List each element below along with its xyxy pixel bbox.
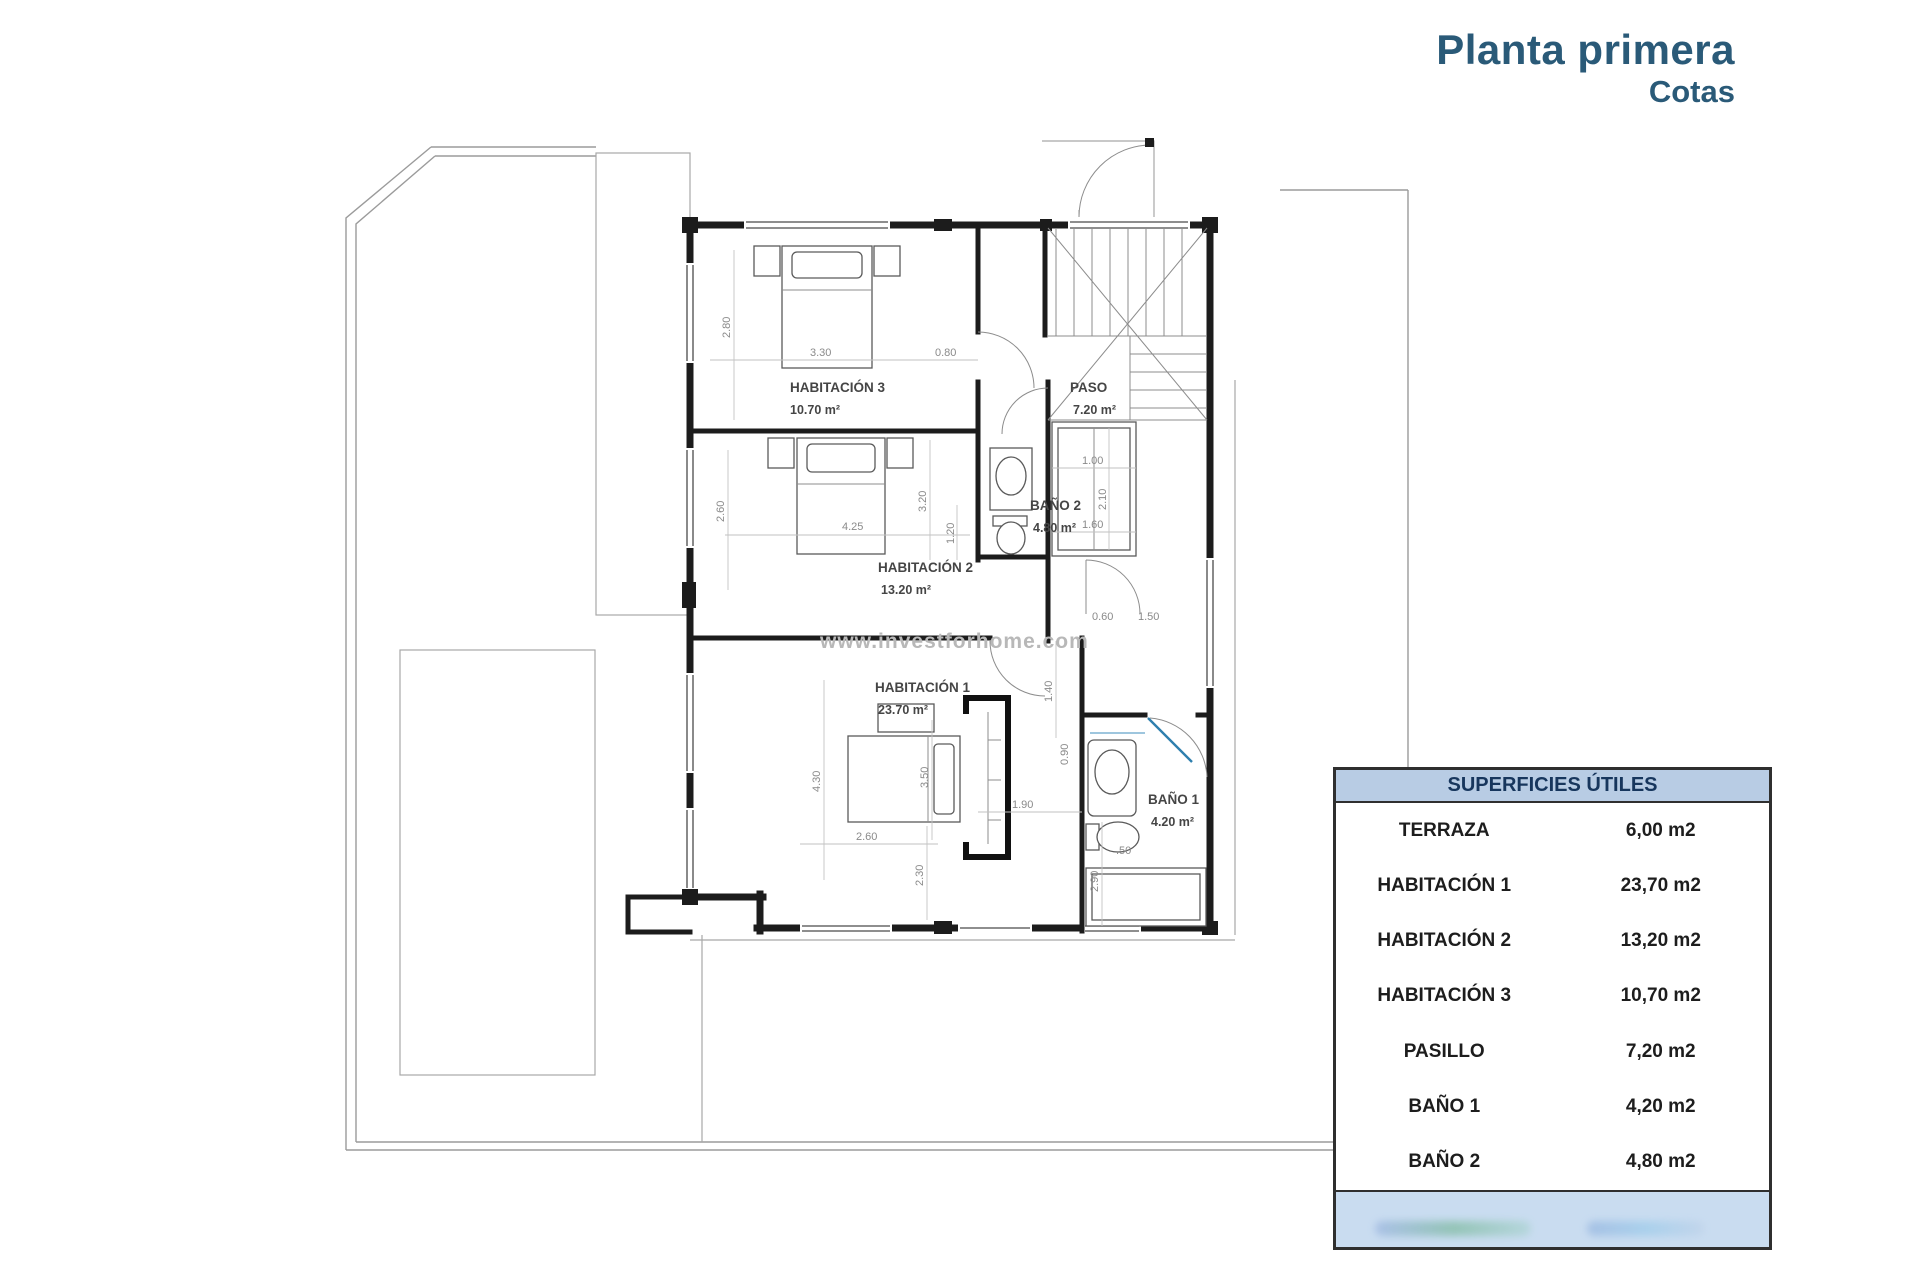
floor-plan-svg: 2.80 3.30 0.80 2.60 4.25 3.20 1.20 1.00 … [330, 120, 1450, 1210]
dim-hab1-g: 2.30 [914, 865, 926, 886]
windows [684, 219, 1216, 934]
terraza-balcony [628, 897, 690, 932]
dim-hab1-d: 3.50 [919, 767, 931, 788]
dim-hab3-height: 2.80 [721, 317, 733, 338]
row-value: 4,20 m2 [1553, 1096, 1770, 1118]
dim-hall-a: 0.60 [1092, 611, 1113, 623]
row-value: 13,20 m2 [1553, 930, 1770, 952]
dim-hab2-width: 4.25 [842, 521, 863, 533]
row-label: TERRAZA [1336, 820, 1553, 842]
dim-closet-width: 1.00 [1082, 455, 1103, 467]
watermark-text: www.investforhome.com [819, 630, 1089, 653]
room-area-habitacion-1: 23.70 m² [878, 703, 928, 717]
dim-hab1-a: 1.40 [1043, 681, 1055, 702]
row-value: 7,20 m2 [1553, 1041, 1770, 1063]
room-area-bano-1: 4.20 m² [1151, 815, 1194, 829]
bed-habitacion-2 [768, 438, 913, 554]
table-row: BAÑO 1 4,20 m2 [1336, 1079, 1769, 1134]
hall-closet [1052, 422, 1136, 556]
row-label: HABITACIÓN 2 [1336, 930, 1553, 952]
dim-hab2-height: 2.60 [715, 501, 727, 522]
row-label: HABITACIÓN 3 [1336, 985, 1553, 1007]
dim-hab3-width: 3.30 [810, 347, 831, 359]
wardrobe-habitacion-1 [966, 698, 1008, 857]
title-block: Planta primera Cotas [1436, 28, 1735, 110]
bed-habitacion-1 [848, 704, 960, 822]
table-row: HABITACIÓN 2 13,20 m2 [1336, 914, 1769, 969]
table-row: TERRAZA 6,00 m2 [1336, 803, 1769, 858]
row-value: 6,00 m2 [1553, 820, 1770, 842]
room-label-habitacion-3: HABITACIÓN 3 [790, 380, 885, 395]
table-row: BAÑO 2 4,80 m2 [1336, 1135, 1769, 1190]
floor-plan-drawing: 2.80 3.30 0.80 2.60 4.25 3.20 1.20 1.00 … [330, 120, 1450, 1210]
room-label-habitacion-1: HABITACIÓN 1 [875, 680, 970, 695]
dim-bano1-b: .50 [1116, 845, 1131, 857]
bathroom-2-fixtures [990, 448, 1032, 554]
dim-hab2-east: 3.20 [917, 491, 929, 512]
dim-hab3-door: 0.80 [935, 347, 956, 359]
dim-hab1-b: 0.90 [1059, 744, 1071, 765]
room-area-habitacion-3: 10.70 m² [790, 403, 840, 417]
dim-hab1-f: 2.60 [856, 831, 877, 843]
room-label-paso: PASO [1070, 380, 1107, 395]
dim-closet-height: 2.10 [1097, 489, 1109, 510]
row-value: 10,70 m2 [1553, 985, 1770, 1007]
table-row: HABITACIÓN 3 10,70 m2 [1336, 969, 1769, 1024]
surfaces-table: SUPERFICIES ÚTILES TERRAZA 6,00 m2 HABIT… [1333, 767, 1772, 1250]
surfaces-table-header: SUPERFICIES ÚTILES [1336, 770, 1769, 803]
dim-hall-b: 1.50 [1138, 611, 1159, 623]
dim-hab1-c: 1.90 [1012, 799, 1033, 811]
room-area-paso: 7.20 m² [1073, 403, 1116, 417]
dim-closet-width2: 1.60 [1082, 519, 1103, 531]
faded-logo-smudge [1375, 1221, 1531, 1236]
dim-bano1-a: 2.90 [1089, 871, 1101, 892]
surfaces-table-footer [1336, 1190, 1769, 1247]
roof-access-door [1042, 138, 1154, 217]
room-area-habitacion-2: 13.20 m² [881, 583, 931, 597]
row-label: HABITACIÓN 1 [1336, 875, 1553, 897]
room-area-bano-2: 4.80 m² [1033, 521, 1076, 535]
row-value: 23,70 m2 [1553, 875, 1770, 897]
surfaces-table-body: TERRAZA 6,00 m2 HABITACIÓN 1 23,70 m2 HA… [1336, 803, 1769, 1190]
table-row: HABITACIÓN 1 23,70 m2 [1336, 858, 1769, 913]
row-label: PASILLO [1336, 1041, 1553, 1063]
dim-bano2-width: 1.20 [945, 523, 957, 544]
row-label: BAÑO 1 [1336, 1096, 1553, 1118]
room-label-bano-1: BAÑO 1 [1148, 792, 1199, 807]
wall-pillars [682, 217, 1218, 935]
page-subtitle: Cotas [1436, 74, 1735, 110]
room-label-bano-2: BAÑO 2 [1030, 498, 1081, 513]
page-title: Planta primera [1436, 28, 1735, 72]
faded-logo-smudge [1587, 1221, 1704, 1236]
dim-hab1-e: 4.30 [811, 771, 823, 792]
table-row: PASILLO 7,20 m2 [1336, 1024, 1769, 1079]
room-label-habitacion-2: HABITACIÓN 2 [878, 560, 973, 575]
floor-plan-page: Planta primera Cotas [0, 0, 1920, 1280]
row-label: BAÑO 2 [1336, 1151, 1553, 1173]
row-value: 4,80 m2 [1553, 1151, 1770, 1173]
